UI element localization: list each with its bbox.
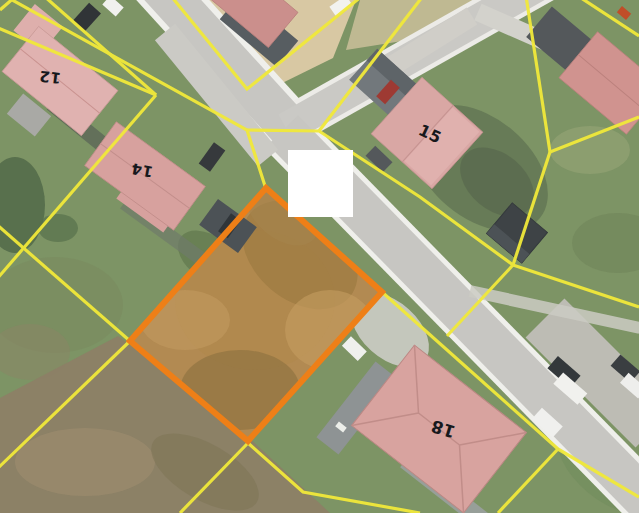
censor-block <box>288 150 353 217</box>
bush <box>38 214 78 242</box>
house-label-12: 12 <box>38 67 62 88</box>
aerial-photo: 12 14 15 18 <box>0 0 639 513</box>
house-label-14: 14 <box>130 159 155 181</box>
dry-grass-patch <box>550 126 630 174</box>
aerial-map-viewport[interactable]: 12 14 15 18 <box>0 0 639 513</box>
dirt-patch <box>15 428 155 496</box>
